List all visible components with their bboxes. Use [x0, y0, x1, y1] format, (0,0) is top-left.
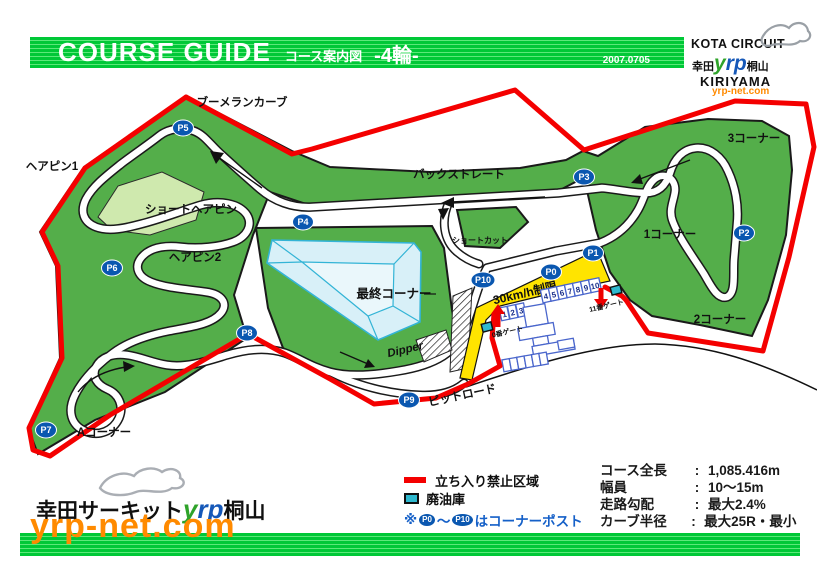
- brand-url: yrp-net.com: [712, 86, 769, 97]
- legend-restricted-row: 立ち入り禁止区域: [404, 471, 583, 489]
- stat-value: 1,085.416m: [708, 462, 780, 479]
- stat-separator: :: [686, 479, 708, 496]
- corner-post-p2: P2: [734, 225, 755, 241]
- svg-text:P2: P2: [738, 228, 749, 238]
- stat-separator: :: [686, 462, 708, 479]
- yrp-logo-rp: rp: [726, 52, 747, 75]
- corner-post-p5: P5: [173, 120, 194, 136]
- legend-restricted-label: 立ち入り禁止区域: [435, 471, 539, 490]
- legend: 立ち入り禁止区域 廃油庫 ※ P0 〜 P10 はコーナーポスト: [404, 471, 583, 530]
- corner-post-p8: P8: [237, 325, 258, 341]
- svg-text:P5: P5: [177, 123, 188, 133]
- stat-label: 幅員: [600, 479, 686, 496]
- corner-post-p6: P6: [102, 260, 123, 276]
- brand-kanji-right: 桐山: [747, 61, 769, 73]
- svg-text:P8: P8: [241, 328, 252, 338]
- circuit-logo-box: KOTA CIRCUIT 幸田yrp桐山 KIRIYAMA yrp-net.co…: [684, 12, 817, 94]
- legend-oil-label: 廃油庫: [426, 489, 465, 508]
- label-corner3: 3コーナー: [728, 132, 780, 145]
- corner-post-p1: P1: [583, 245, 604, 261]
- corner-post-p0: P0: [541, 264, 562, 280]
- label-short-hairpin: ショートヘアピン: [145, 203, 237, 216]
- svg-text:P6: P6: [106, 263, 117, 273]
- svg-text:P9: P9: [403, 395, 414, 405]
- label-final-corner: 最終コーナー: [356, 286, 431, 301]
- stat-value: 最大2.4%: [708, 496, 766, 513]
- corner-post-p3: P3: [574, 169, 595, 185]
- stat-row-gradient: 走路勾配 : 最大2.4%: [600, 496, 817, 513]
- corner-post-p10: P10: [471, 272, 495, 288]
- corner-post-p9: P9: [399, 392, 420, 408]
- yrp-logo-y: y: [714, 52, 726, 75]
- svg-text:P10: P10: [475, 275, 491, 285]
- stat-value: 10〜15m: [708, 479, 764, 496]
- label-a-corner: Aコーナー: [77, 426, 131, 439]
- note-tilde: 〜: [437, 510, 451, 530]
- label-boomerang: ブーメランカーブ: [197, 95, 288, 109]
- stat-row-width: 幅員 : 10〜15m: [600, 479, 817, 496]
- oil-store-square-gate11: [610, 285, 622, 295]
- svg-text:P4: P4: [297, 217, 308, 227]
- stat-row-length: コース全長 : 1,085.416m: [600, 462, 817, 479]
- svg-text:P1: P1: [587, 248, 598, 258]
- stat-label: コース全長: [600, 462, 686, 479]
- note-post-last-badge: P10: [452, 514, 472, 526]
- corner-post-p4: P4: [293, 214, 314, 230]
- legend-oil-row: 廃油庫: [404, 489, 583, 507]
- revision-date: 2007.0705: [603, 55, 650, 66]
- course-guide-page: 30km/h制限 1 2 3 4 5 6 7: [0, 0, 817, 576]
- title-banner: COURSE GUIDE コース案内図 -4輪- 2007.0705: [30, 37, 702, 68]
- gate0-arrow-shaft: [496, 312, 501, 327]
- track-sketch-icon: [751, 14, 813, 56]
- oil-store-square-gate0: [481, 322, 493, 332]
- label-shortcut: ショートカット: [452, 236, 508, 245]
- label-corner1: 1コーナー: [644, 228, 696, 241]
- corner-post-p7: P7: [36, 422, 57, 438]
- label-corner2: 2コーナー: [694, 313, 746, 326]
- svg-text:P7: P7: [40, 425, 51, 435]
- page-title: COURSE GUIDE: [58, 37, 271, 68]
- oil-store-swatch: [404, 493, 419, 504]
- svg-text:P3: P3: [578, 172, 589, 182]
- legend-posts-note: ※ P0 〜 P10 はコーナーポスト: [404, 510, 583, 530]
- label-hairpin2: ヘアピン2: [169, 251, 221, 264]
- note-post-first-badge: P0: [419, 514, 435, 526]
- vehicle-category: -4輪-: [374, 39, 418, 68]
- restricted-line-swatch: [404, 477, 426, 483]
- label-back-straight: バックストレート: [413, 168, 505, 181]
- label-hairpin1: ヘアピン1: [26, 160, 79, 173]
- page-subtitle: コース案内図: [285, 46, 362, 65]
- stat-separator: :: [686, 496, 708, 513]
- note-mark: ※: [404, 512, 417, 528]
- brand-kanji-left: 幸田: [692, 61, 714, 73]
- stat-label: 走路勾配: [600, 496, 686, 513]
- svg-text:P0: P0: [545, 267, 556, 277]
- note-text: はコーナーポスト: [475, 510, 583, 530]
- footer-url: yrp-net.com: [30, 507, 236, 546]
